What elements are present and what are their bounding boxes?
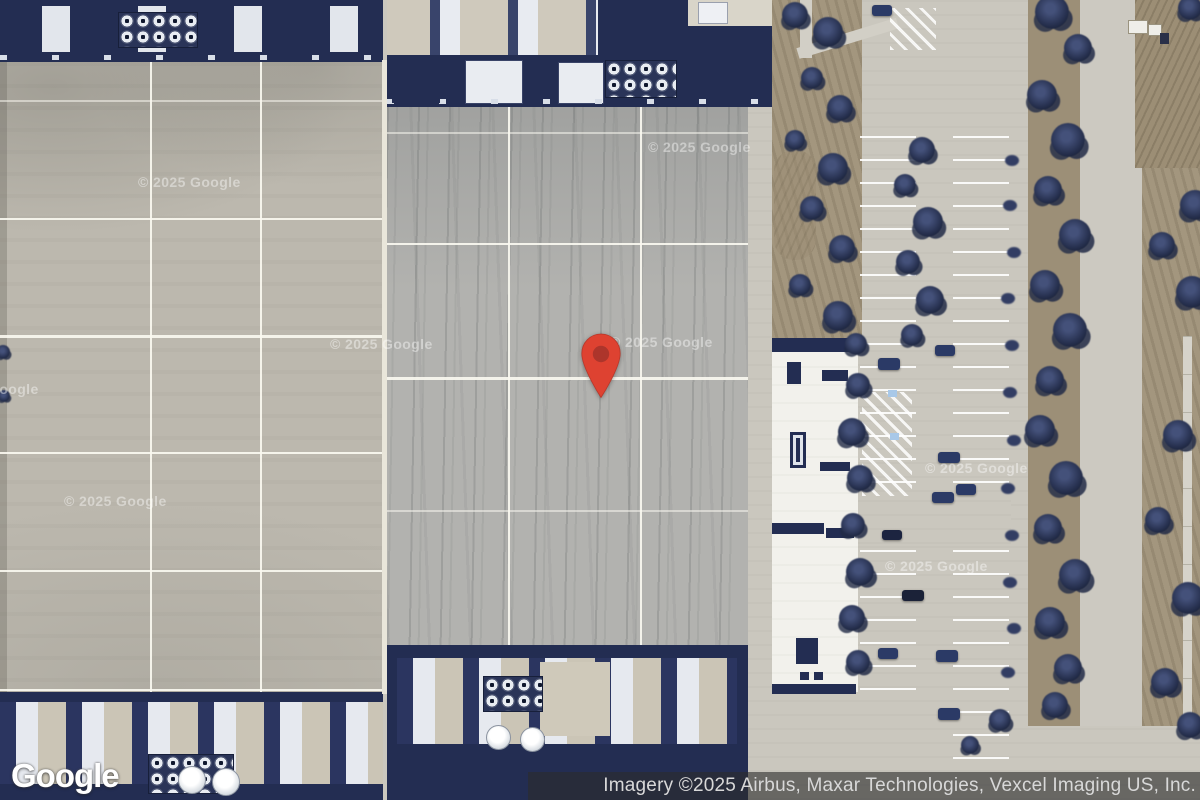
tree (0, 345, 10, 359)
tree (1034, 514, 1062, 542)
tree (1051, 123, 1085, 157)
tree (1036, 366, 1064, 394)
bush (1005, 530, 1019, 541)
car (956, 484, 976, 495)
car (878, 358, 900, 370)
tree (1035, 0, 1069, 29)
tree (1030, 270, 1060, 300)
tree (1145, 507, 1171, 533)
tree (829, 235, 855, 261)
tree (1042, 692, 1068, 718)
bush (1007, 435, 1021, 446)
tree (1163, 420, 1193, 450)
landscaping-layer (0, 0, 1200, 800)
tree (846, 558, 874, 586)
bush (1007, 623, 1021, 634)
bush (1005, 155, 1019, 166)
bush (1003, 387, 1017, 398)
tree (901, 324, 923, 346)
tree (785, 130, 805, 150)
tree (818, 153, 848, 183)
satellite-map[interactable]: © 2025 Google © 2025 Google © 2025 Googl… (0, 0, 1200, 800)
tree (0, 390, 10, 402)
tree (1035, 607, 1065, 637)
tree (1149, 232, 1175, 258)
attribution-text: Imagery ©2025 Airbus, Maxar Technologies… (603, 775, 1196, 797)
tree (961, 736, 979, 754)
tree (1025, 415, 1055, 445)
tree (1059, 219, 1091, 251)
pin-body (582, 334, 620, 398)
car (878, 648, 898, 659)
car (932, 492, 954, 503)
tree (1151, 668, 1179, 696)
bush (1005, 340, 1019, 351)
tree (1027, 80, 1057, 110)
attribution-bar: Imagery ©2025 Airbus, Maxar Technologies… (528, 772, 1200, 800)
tree (1176, 276, 1200, 308)
car (902, 590, 924, 601)
tree (838, 418, 866, 446)
tree (846, 373, 870, 397)
google-logo[interactable]: Google (11, 757, 119, 795)
bush (1001, 293, 1015, 304)
bush (1003, 200, 1017, 211)
tree (894, 174, 916, 196)
tree (847, 465, 873, 491)
tree (1177, 712, 1200, 738)
tree (845, 333, 867, 355)
tree (800, 196, 824, 220)
bush (1003, 577, 1017, 588)
car (938, 452, 960, 463)
tree (916, 286, 944, 314)
pin-hole (593, 346, 609, 362)
tree (1172, 582, 1200, 614)
tree (801, 67, 823, 89)
location-pin[interactable] (581, 333, 621, 399)
tree (782, 2, 808, 28)
tree (789, 274, 811, 296)
tree (1178, 0, 1200, 20)
tree (813, 17, 843, 47)
tree (1064, 34, 1092, 62)
tree (823, 301, 853, 331)
tree (839, 605, 865, 631)
tree (1053, 313, 1087, 347)
car (938, 708, 960, 720)
tree (1034, 176, 1062, 204)
tree (989, 709, 1011, 731)
car (882, 530, 902, 540)
tree (846, 650, 870, 674)
tree (1054, 654, 1082, 682)
tree (909, 137, 935, 163)
tree (1059, 559, 1091, 591)
bush (1001, 483, 1015, 494)
tree (1049, 461, 1083, 495)
tree (913, 207, 943, 237)
car (872, 5, 892, 16)
car (935, 345, 955, 356)
bush (1001, 667, 1015, 678)
tree (1180, 190, 1200, 220)
tree (827, 95, 853, 121)
bush (1007, 247, 1021, 258)
tree (841, 513, 865, 537)
tree (896, 250, 920, 274)
car (936, 650, 958, 662)
